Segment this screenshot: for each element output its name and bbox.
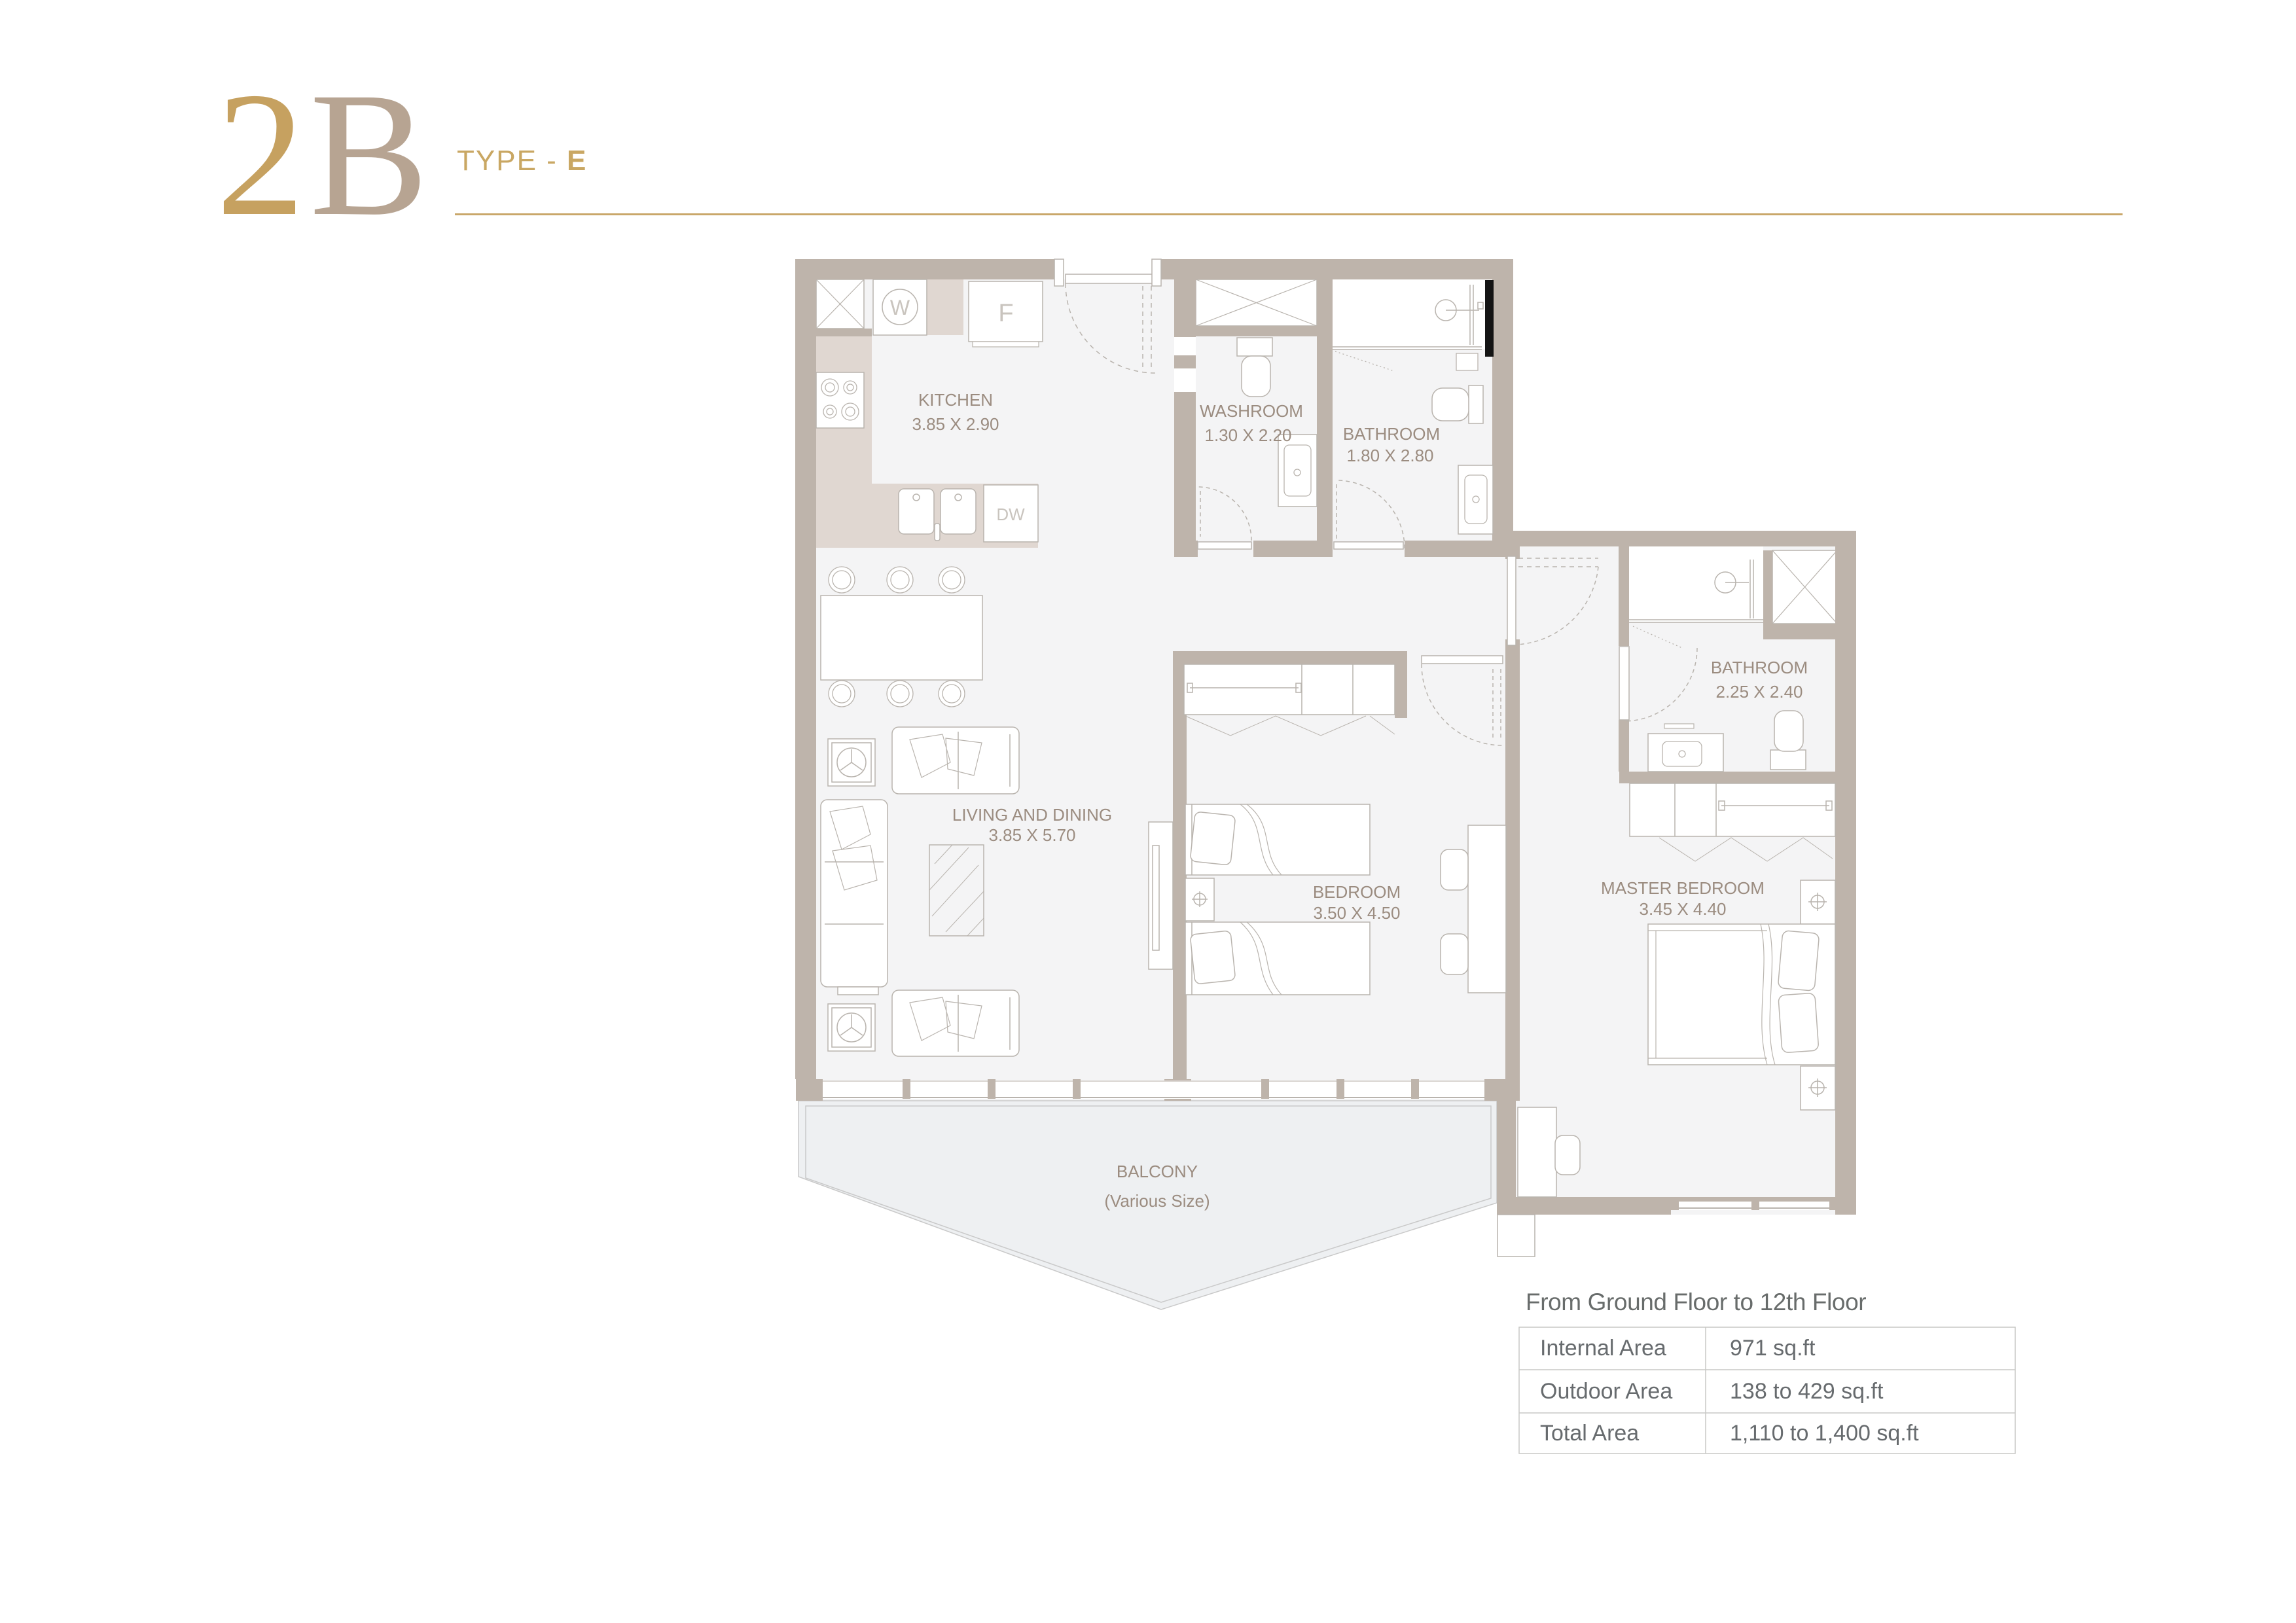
svg-text:2: 2 [216, 56, 305, 253]
svg-text:BATHROOM: BATHROOM [1343, 424, 1440, 444]
svg-text:138 to 429 sq.ft: 138 to 429 sq.ft [1730, 1379, 1884, 1404]
svg-text:1.80 X 2.80: 1.80 X 2.80 [1347, 446, 1434, 465]
svg-text:3.50 X 4.50: 3.50 X 4.50 [1314, 903, 1401, 923]
svg-text:MASTER BEDROOM: MASTER BEDROOM [1601, 878, 1765, 898]
svg-text:F: F [998, 300, 1013, 327]
svg-text:Internal Area: Internal Area [1540, 1336, 1666, 1361]
svg-text:From Ground Floor to 12th Floo: From Ground Floor to 12th Floor [1526, 1289, 1866, 1315]
svg-text:3.85 X 5.70: 3.85 X 5.70 [989, 825, 1076, 845]
svg-text:2.25 X 2.40: 2.25 X 2.40 [1716, 682, 1803, 702]
svg-text:3.45 X 4.40: 3.45 X 4.40 [1640, 899, 1727, 919]
svg-text:B: B [310, 56, 428, 253]
svg-text:DW: DW [996, 505, 1025, 524]
svg-text:TYPE - E: TYPE - E [457, 145, 587, 177]
svg-text:BATHROOM: BATHROOM [1711, 658, 1808, 677]
svg-text:WASHROOM: WASHROOM [1200, 401, 1303, 421]
svg-text:W: W [890, 296, 910, 319]
svg-text:LIVING AND DINING: LIVING AND DINING [952, 805, 1112, 825]
svg-text:971 sq.ft: 971 sq.ft [1730, 1336, 1816, 1361]
svg-text:BEDROOM: BEDROOM [1313, 882, 1401, 902]
svg-text:Total Area: Total Area [1540, 1421, 1639, 1446]
svg-text:(Various Size): (Various Size) [1104, 1191, 1210, 1211]
svg-text:Outdoor Area: Outdoor Area [1540, 1379, 1672, 1404]
svg-text:1,110 to 1,400 sq.ft: 1,110 to 1,400 sq.ft [1730, 1421, 1919, 1446]
svg-text:BALCONY: BALCONY [1117, 1162, 1198, 1181]
svg-text:KITCHEN: KITCHEN [918, 390, 993, 410]
svg-text:3.85 X 2.90: 3.85 X 2.90 [912, 414, 999, 434]
svg-text:1.30 X 2.20: 1.30 X 2.20 [1205, 425, 1292, 445]
